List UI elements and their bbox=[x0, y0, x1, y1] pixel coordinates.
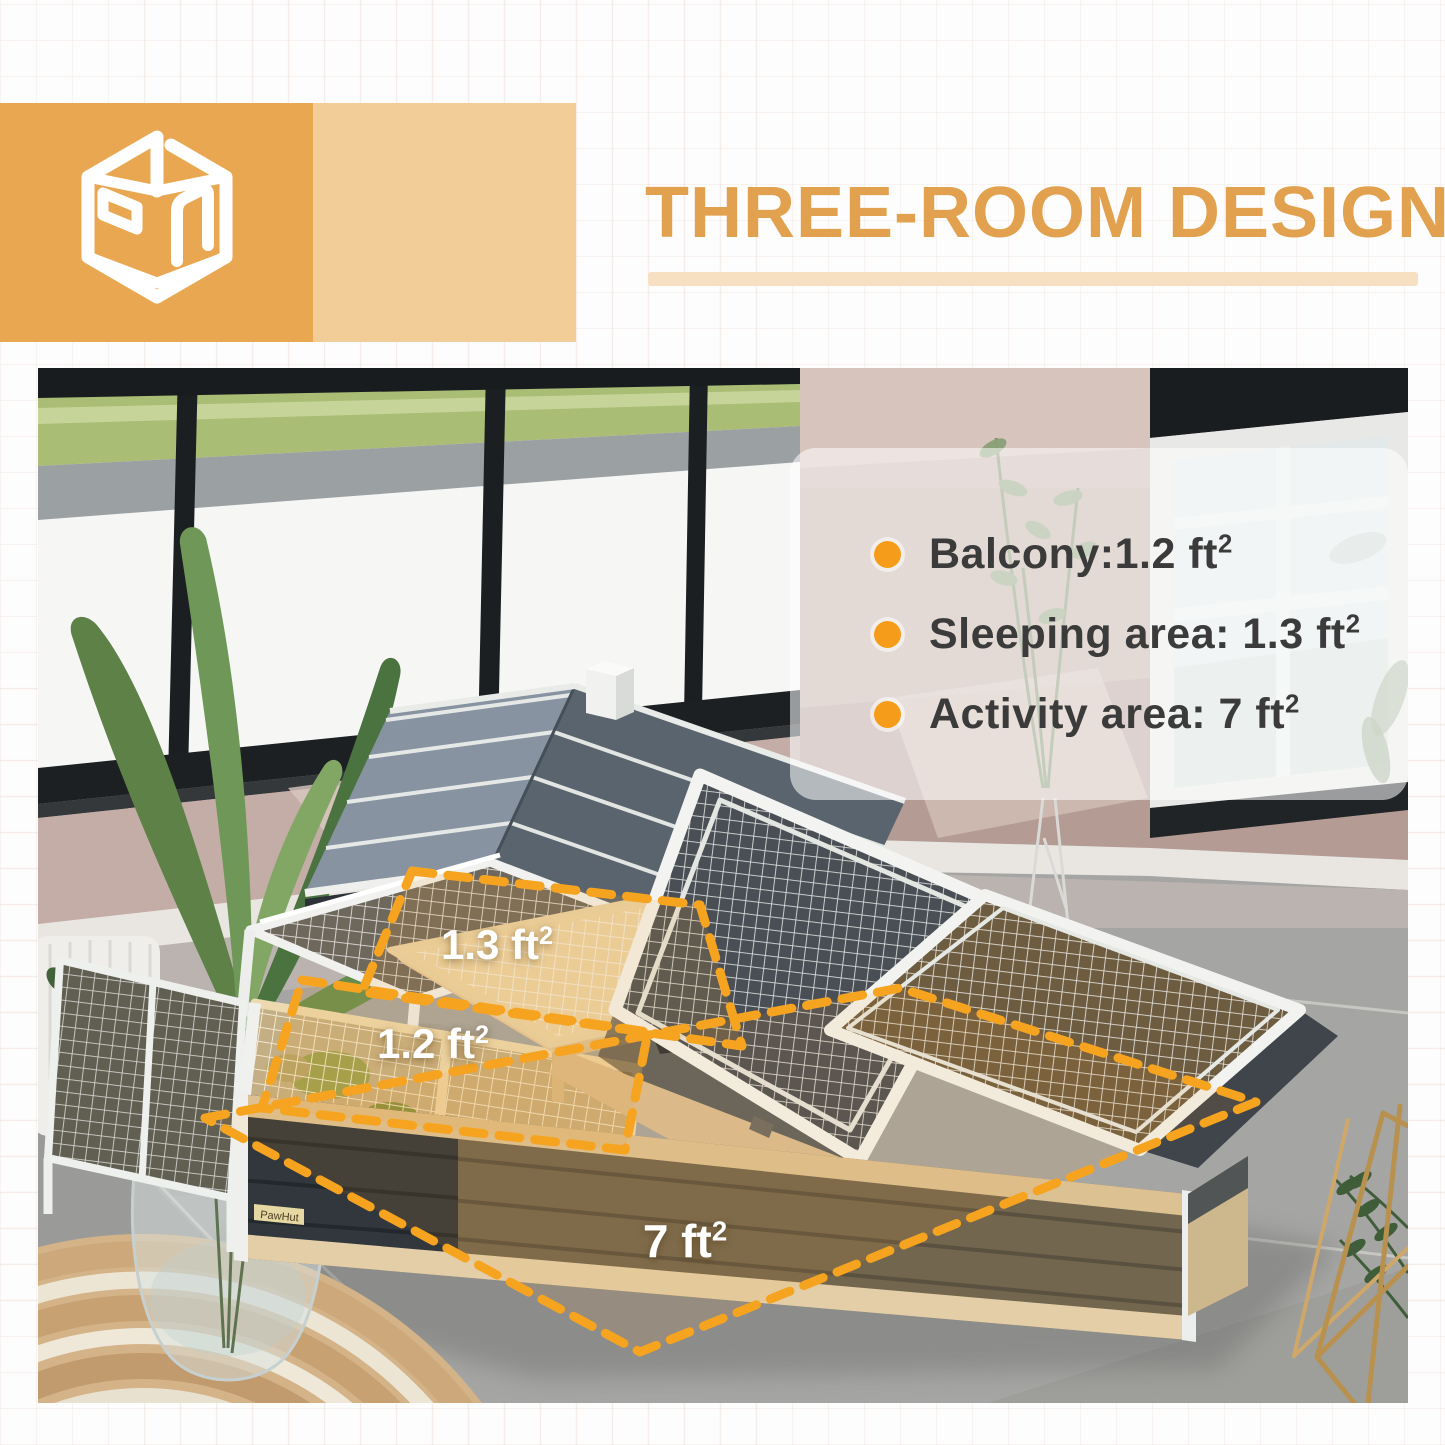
bullet-icon bbox=[874, 541, 901, 568]
balcony-area-label: 1.2 ft2 bbox=[377, 1020, 489, 1068]
product-photo: PawHut bbox=[38, 368, 1408, 1403]
bullet-icon bbox=[874, 701, 901, 728]
feature-item-activity: Activity area: 7 ft2 bbox=[790, 686, 1408, 742]
feature-item-sleeping: Sleeping area: 1.3 ft2 bbox=[790, 606, 1408, 662]
feature-text: Balcony:1.2 ft2 bbox=[929, 530, 1233, 579]
feature-text: Sleeping area: 1.3 ft2 bbox=[929, 610, 1361, 659]
activity-area-label: 7 ft2 bbox=[643, 1214, 727, 1268]
logo-block-light bbox=[313, 103, 576, 342]
spec-panel: Balcony:1.2 ft2 Sleeping area: 1.3 ft2 A… bbox=[790, 448, 1408, 800]
marketing-page: { "header": { "title": "THREE-ROOM DESIG… bbox=[0, 0, 1445, 1445]
feature-item-balcony: Balcony:1.2 ft2 bbox=[790, 526, 1408, 582]
title-underline bbox=[648, 272, 1418, 286]
isometric-room-icon bbox=[70, 130, 244, 304]
sleeping-area-label: 1.3 ft2 bbox=[441, 921, 553, 969]
page-title: THREE-ROOM DESIGN bbox=[645, 172, 1445, 254]
feature-text: Activity area: 7 ft2 bbox=[929, 690, 1300, 739]
bullet-icon bbox=[874, 621, 901, 648]
